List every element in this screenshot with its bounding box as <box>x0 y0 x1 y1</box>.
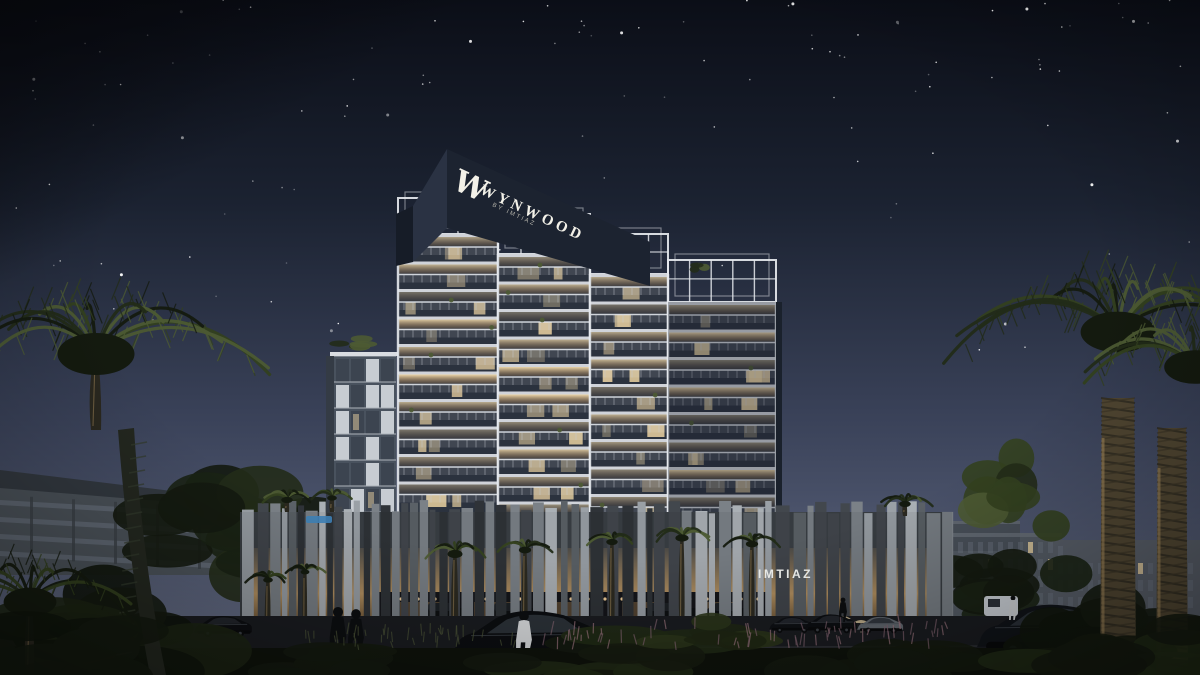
corner-shade <box>0 0 760 460</box>
night-render-scene: W WYNWOOD BY IMTIAZ IMTIAZ <box>0 0 1200 675</box>
render-canvas: W WYNWOOD BY IMTIAZ IMTIAZ <box>0 0 1200 675</box>
